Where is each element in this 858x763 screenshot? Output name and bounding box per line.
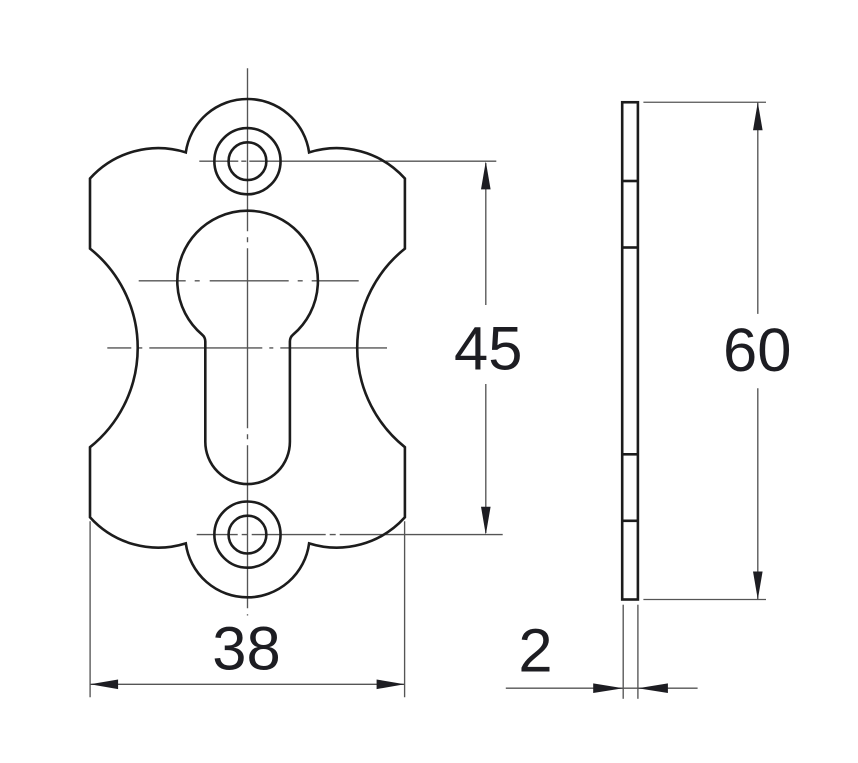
svg-text:45: 45 bbox=[454, 315, 522, 384]
svg-text:2: 2 bbox=[518, 617, 552, 686]
svg-text:60: 60 bbox=[723, 316, 791, 385]
svg-text:38: 38 bbox=[212, 615, 280, 684]
